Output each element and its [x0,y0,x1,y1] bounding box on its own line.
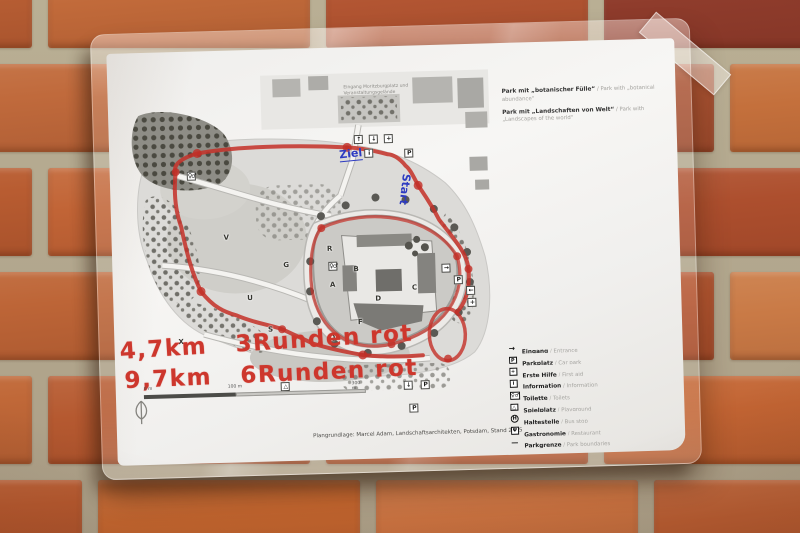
map-area-letter: U [247,294,253,302]
map-area-letter: V [223,234,229,242]
brick [98,480,360,533]
brick [0,376,32,464]
park-subtitle: Park mit „Landschaften von Welt“ / Park … [502,105,660,124]
map-area-letter: B [353,265,359,273]
legend-icon: i [510,380,518,388]
map-icon: P [409,403,418,412]
legend-icon: ♀♂ [510,392,520,400]
brick [730,272,800,360]
legend-icon: P [509,356,517,364]
map-area-letter: D [375,294,381,302]
map-icon: ↓ [404,381,413,390]
park-map-sheet: VGRBADCFQUSX ↑↓+iP→P←+↓PP♀♂♀♂△ Eingang M… [106,38,685,466]
map-entrance-note: Eingang Moritzburgplatz undVeranstaltung… [343,83,433,97]
map-area-letter: G [283,261,289,269]
map-icon: P [421,380,430,389]
legend-letter-list: A Schloss Moritzburg / Castle Moritzburg… [503,130,677,337]
legend-icon: + [509,368,517,376]
brick [376,480,638,533]
map-icon: ↑ [354,135,363,144]
map-area-letter: C [412,283,417,291]
legend-column: Park mit „botanischer Fülle“ / Park with… [501,84,679,448]
photo-of-park-map-on-brick-wall: VGRBADCFQUSX ↑↓+iP→P←+↓PP♀♂♀♂△ Eingang M… [0,0,800,533]
map-icon: → [441,263,450,272]
legend-icon: — [511,439,517,447]
handwritten-ziel-label: Ziel [339,146,363,162]
brick [730,64,800,152]
scale-mid: 100 m [228,384,243,389]
map-area-letter: A [330,281,336,289]
map-icon: ← [466,286,475,295]
scale-segment-dark [144,393,236,400]
brick [0,0,32,48]
legend-icon: △ [510,403,518,411]
map-icon: + [467,298,476,307]
map-icon: ↓ [369,134,378,143]
park-subtitle: Park mit „botanischer Fülle“ / Park with… [501,85,659,104]
map-icon: + [384,134,393,143]
scale-zero: 0 m [144,387,153,392]
map-credit-caption: Plangrundlage: Marcel Adam, Landschaftsa… [313,428,522,440]
legend-icon-list: → Eingang / Entrance P Parkplatz / Car p… [509,338,680,449]
scale-segment-light [236,389,366,397]
legend-icon: → [509,344,516,353]
map-area-letter: R [327,245,333,253]
map-icon: i [364,149,373,158]
map-icon: ♀♂ [328,262,337,271]
brick [654,480,800,533]
legend-icon: H [511,415,519,423]
legend-icon: Ψ [511,427,519,435]
map-icon: ♀♂ [187,172,196,181]
brick [0,480,82,533]
map-icon: P [454,275,463,284]
brick [0,168,32,256]
map-icon: P [404,148,413,157]
